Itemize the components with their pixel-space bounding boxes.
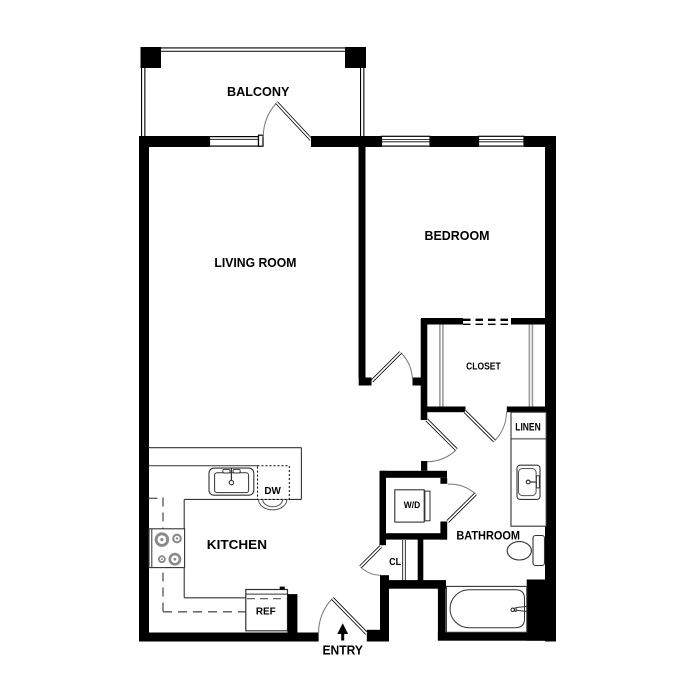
svg-text:DW: DW xyxy=(264,485,281,497)
svg-text:BATHROOM: BATHROOM xyxy=(456,529,520,543)
svg-text:ENTRY: ENTRY xyxy=(322,644,363,658)
svg-text:CL: CL xyxy=(389,557,401,568)
svg-text:BEDROOM: BEDROOM xyxy=(425,228,490,243)
svg-text:CLOSET: CLOSET xyxy=(466,361,501,372)
svg-text:REF: REF xyxy=(256,606,276,618)
svg-text:BALCONY: BALCONY xyxy=(227,84,290,99)
svg-text:W/D: W/D xyxy=(404,500,421,510)
svg-text:LIVING ROOM: LIVING ROOM xyxy=(214,255,296,270)
svg-text:LINEN: LINEN xyxy=(515,421,541,433)
svg-text:KITCHEN: KITCHEN xyxy=(207,537,267,552)
